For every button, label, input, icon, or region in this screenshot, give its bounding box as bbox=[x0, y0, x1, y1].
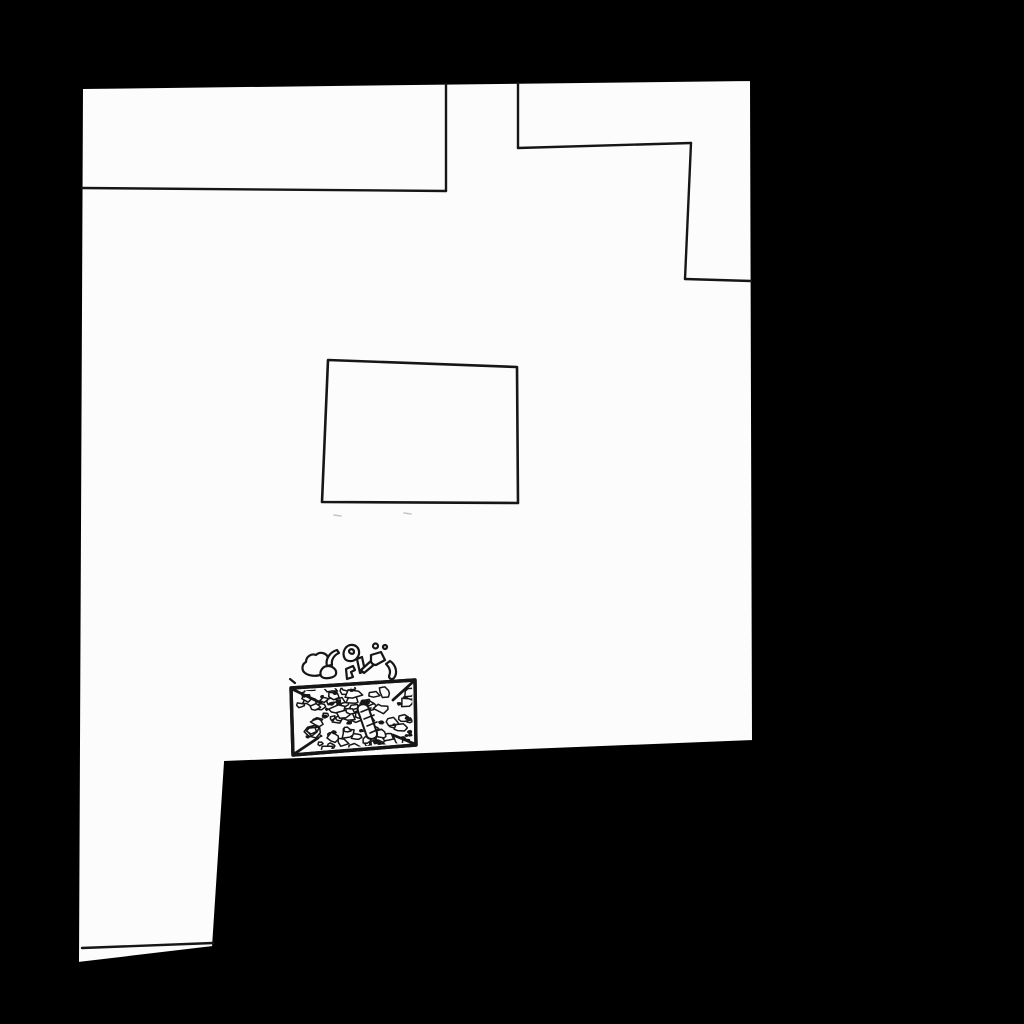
rubble-crevice bbox=[321, 696, 323, 698]
rubble-crevice bbox=[329, 702, 334, 705]
rubble-crevice bbox=[405, 717, 409, 720]
debris-box bbox=[291, 680, 416, 756]
rubble-crevice bbox=[332, 731, 336, 734]
map-canvas bbox=[0, 0, 1024, 1024]
rubble-stone bbox=[351, 734, 362, 740]
rubble-crevice bbox=[333, 692, 337, 694]
rubble-crevice bbox=[379, 721, 384, 724]
rubble-crevice bbox=[350, 689, 353, 691]
faint-mark-right bbox=[404, 513, 411, 514]
rubble-crevice bbox=[408, 731, 412, 734]
rubble-crevice bbox=[336, 700, 340, 704]
pebble-small bbox=[320, 666, 336, 678]
rubble-crevice bbox=[405, 735, 408, 737]
rubble-crevice bbox=[347, 722, 351, 724]
tiny-circle-1 bbox=[373, 644, 378, 649]
faint-mark-left bbox=[334, 515, 341, 516]
rubble-crevice bbox=[373, 739, 379, 743]
rubble-stone bbox=[346, 709, 355, 715]
rubble-crevice bbox=[360, 730, 364, 732]
rubble-crevice bbox=[326, 708, 328, 710]
rubble-crevice bbox=[393, 724, 395, 726]
rubble-crevice bbox=[398, 703, 402, 705]
drawing-stage bbox=[0, 0, 1024, 1024]
rubble-crevice bbox=[323, 715, 327, 718]
rubble-crevice bbox=[306, 736, 309, 738]
tiny-circle-2 bbox=[383, 645, 387, 649]
